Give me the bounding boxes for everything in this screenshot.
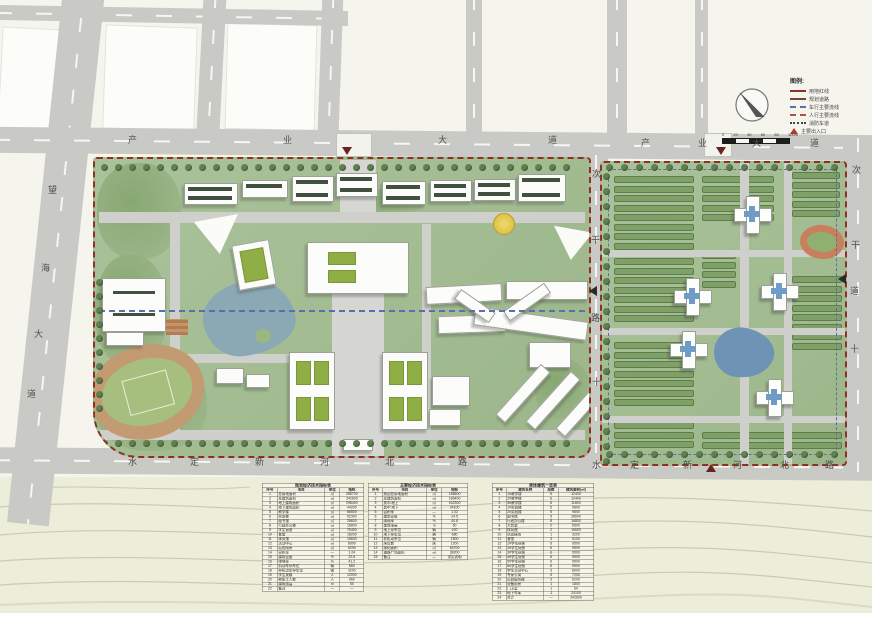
roof-strip [340,188,372,192]
table-cell: — [427,555,441,560]
legend-sample-dash-blue [790,106,806,108]
roof-strip [296,180,328,184]
roof-strip [113,313,155,316]
tree [96,335,103,342]
lakeside-building [216,368,244,384]
tree [255,440,262,447]
scale-segment [763,139,776,143]
scale-label: 60 [761,132,765,137]
tree [606,451,613,458]
road-label-top-east: 产 [641,139,650,148]
tree [666,451,673,458]
dormitory-building [430,180,472,202]
tree [129,164,136,171]
tree [199,440,206,447]
city-road [695,0,708,134]
tree [603,323,610,330]
roof-strip [340,177,372,181]
table-cell: — [325,587,340,592]
tree [603,218,610,225]
tree [603,398,610,405]
tree [465,440,472,447]
city-block [102,24,198,131]
tree [603,338,610,345]
road-label-left: 海 [41,264,50,273]
road-label-right: 次 [852,166,861,175]
road-label-top-east: 大 [752,139,761,148]
tree [96,293,103,300]
lakeside-building [246,374,270,388]
tree [171,440,178,447]
tree [115,164,122,171]
tree [726,451,733,458]
tree [157,440,164,447]
tree [353,164,360,171]
tree [96,405,103,412]
tree [96,391,103,398]
tree [726,164,733,171]
tree [96,349,103,356]
tree [297,164,304,171]
tree [603,248,610,255]
tree [493,440,500,447]
legend-label: 人行主要流线 [809,112,839,119]
triangle-building-east [554,222,591,260]
road-label-top-west: 道 [548,136,557,145]
road-label-bottom-east: 新 [683,461,692,470]
vehicle-flow-ring [608,169,837,455]
road-label-bottom-east: 北 [780,461,789,470]
road-label-bottom-west: 水 [128,458,137,467]
gymnasium [102,278,166,332]
courtyard-building [382,352,428,430]
dormitory-building [292,176,334,202]
roof-strip [434,193,466,197]
tree [521,440,528,447]
tree [283,164,290,171]
road-label-left: 望 [48,186,57,195]
legend-sample-dot-black [790,122,806,124]
dormitory-building [242,180,288,198]
drawing-sheet: 图例: 用地红线规划道路车行主要流线人行主要流线消防车道主要出入口 020406… [0,0,872,620]
roof-strip [478,192,510,196]
road-label-middle: 次 [592,170,601,179]
tree [96,321,103,328]
dormitory-building [518,174,566,202]
roof-strip [246,184,282,188]
road-label-right: 十 [850,345,859,354]
roof-strip [522,193,560,197]
tree [395,164,402,171]
tree [603,173,610,180]
roof-strip [386,196,420,200]
roof-strip [188,196,232,200]
table-cell: — [544,596,558,601]
tree [771,164,778,171]
tree [101,164,108,171]
scale-segment [736,139,749,143]
road-label-right: 道 [850,287,859,296]
legend-label: 消防车道 [809,120,829,127]
legend-item: 用地红线 [790,87,872,95]
road-label-bottom-west: 北 [385,458,394,467]
courtyard-green [407,361,422,385]
tree [741,451,748,458]
tree [101,440,108,447]
tree [816,451,823,458]
table-cell: 15 [368,555,382,560]
table-cell: 详见说明 [441,555,467,560]
tree [521,164,528,171]
table-cell: 合计 [506,596,544,601]
tree [423,164,430,171]
tree [479,440,486,447]
tree [563,440,570,447]
tree [157,164,164,171]
tree [636,164,643,171]
dormitory-building [382,181,426,205]
gym-annex [106,332,144,346]
courtyard-green [389,361,404,385]
table-row: 24合计—342600 [492,596,594,601]
tree [603,428,610,435]
tree [771,451,778,458]
tree [507,164,514,171]
road-label-right: 干 [851,241,860,250]
tree [311,440,318,447]
scale-label: 40 [747,132,751,137]
tree [493,164,500,171]
courtyard-green [389,397,404,421]
scale-label: 100m [788,132,798,137]
tree [213,164,220,171]
tree [171,164,178,171]
scale-segment [776,139,789,143]
tree [96,363,103,370]
tree [535,164,542,171]
tree [507,440,514,447]
tree [681,451,688,458]
road-label-bottom-east: 水 [592,461,601,470]
scale-segment [723,139,736,143]
road-label-bottom-east: 路 [825,461,834,470]
courtyard-green [314,397,329,421]
tree [666,164,673,171]
legend: 图例: 用地红线规划道路车行主要流线人行主要流线消防车道主要出入口 [790,76,872,135]
art-center-building [231,239,276,291]
tree [143,440,150,447]
tree [603,413,610,420]
roof-strip [188,187,232,191]
tree [96,377,103,384]
legend-label: 车行主要流线 [809,104,839,111]
entrance-marker [716,147,726,155]
tree [325,440,332,447]
legend-label: 规划道路 [809,96,829,103]
legend-label: 用地红线 [809,88,829,95]
tree [535,440,542,447]
table: 单体建筑一览表序号建筑名称层数建筑面积(㎡)11#教学楼61240022#教学楼… [492,483,594,601]
table-cell: 备注 [383,555,427,560]
table-cell: 备注 [278,587,325,592]
tree [549,440,556,447]
east-campus [600,161,847,466]
tree [549,164,556,171]
table-cell: — [340,587,364,592]
table: 主要经济技术指标表序号项目单位指标1规划总用地面积㎡1586002总建筑面积㎡1… [368,483,468,560]
tree [241,440,248,447]
scale-label: 0 [722,132,724,137]
tree [603,263,610,270]
tree [339,164,346,171]
tree [603,458,610,465]
legend-item: 车行主要流线 [790,103,872,111]
tree [831,164,838,171]
city-block [225,23,318,131]
entrance-marker [589,286,597,296]
road-label-bottom-west: 路 [458,458,467,467]
road-label-bottom-east: 定 [630,461,639,470]
road-label-top-west: 大 [438,136,447,145]
tree [621,164,628,171]
tree [603,293,610,300]
courtyard-green [296,397,311,421]
tree [185,164,192,171]
tree [96,307,103,314]
table-cell: 24 [492,596,506,601]
legend-sample-solid-red [790,90,806,92]
lake-island [255,329,271,343]
road-label-top-east: 业 [698,139,707,148]
tree [409,440,416,447]
tree [563,164,570,171]
dormitory-building [184,183,238,205]
table: 规划经济技术指标表序号项目单位指标1总用地面积㎡2867002总建筑面积㎡342… [262,483,364,592]
tree [479,164,486,171]
tree [353,440,360,447]
north-compass-icon [731,84,775,128]
tree [603,383,610,390]
tree [603,233,610,240]
tree [681,164,688,171]
table-row: 22备注—— [262,587,364,592]
central-axis-plaza [332,288,384,456]
tree [367,164,374,171]
road-secondary-east [843,138,872,472]
scale-label: 20 [733,132,737,137]
roof-strip [386,185,420,189]
roof-strip [478,183,510,187]
road-label-middle: 十 [592,378,601,387]
tree [451,164,458,171]
green-roof [328,270,356,283]
tree [756,164,763,171]
tree [199,164,206,171]
tree [437,440,444,447]
tree [651,451,658,458]
west-campus [93,157,591,458]
tree [227,164,234,171]
tree [741,164,748,171]
indicator-table-1: 规划经济技术指标表序号项目单位指标1总用地面积㎡2867002总建筑面积㎡342… [262,483,365,592]
tree [786,164,793,171]
tree [297,440,304,447]
tree [129,440,136,447]
roof-strip [113,291,155,294]
tree [395,440,402,447]
entrance-marker [706,464,716,472]
green-roof [239,247,268,283]
tree [603,188,610,195]
tree [325,164,332,171]
roof-strip [522,178,560,182]
road-label-bottom-west: 定 [190,458,199,467]
table-cell: 342600 [558,596,594,601]
legend-item: 规划道路 [790,95,872,103]
road-label-bottom-east: 河 [733,461,742,470]
tree [96,279,103,286]
tree [437,164,444,171]
tree [255,164,262,171]
legend-item: 人行主要流线 [790,111,872,119]
scale-label: 80 [774,132,778,137]
courtyard-green [407,397,422,421]
legend-title: 图例: [790,76,872,85]
dormitory-building [474,179,516,201]
road-label-top-east: 道 [810,139,819,148]
tree [816,164,823,171]
building-list-table: 单体建筑一览表序号建筑名称层数建筑面积(㎡)11#教学楼61240022#教学楼… [492,483,595,601]
legend-items: 用地红线规划道路车行主要流线人行主要流线消防车道主要出入口 [790,87,872,135]
sheet-margin [0,613,872,620]
courtyard-green [296,361,311,385]
site-plan-page: 图例: 用地红线规划道路车行主要流线人行主要流线消防车道主要出入口 020406… [0,0,872,620]
main-building [307,242,409,294]
tree [606,164,613,171]
courtyard-building [289,352,335,430]
tree [786,451,793,458]
indicator-table-2: 主要经济技术指标表序号项目单位指标1规划总用地面积㎡1586002总建筑面积㎡1… [368,483,469,560]
tree [603,368,610,375]
tree [801,164,808,171]
green-roof [328,252,356,265]
city-road [607,0,627,134]
legend-sample-dash-red [790,114,806,116]
courtyard-green [314,361,329,385]
city-road [318,0,344,134]
road-label-left: 道 [27,390,36,399]
road-label-bottom-west: 新 [255,458,264,467]
tree [185,440,192,447]
tree [696,164,703,171]
legend-item: 消防车道 [790,119,872,127]
entrance-marker [342,147,352,155]
tree [603,353,610,360]
tree [339,440,346,447]
tree [465,164,472,171]
tree [451,440,458,447]
tree [603,308,610,315]
tree [241,164,248,171]
road-label-top-west: 业 [283,136,292,145]
dormitory-building [336,173,378,197]
entrance-marker [838,274,846,284]
teaching-building [429,409,461,426]
tree [283,440,290,447]
tree [381,164,388,171]
tree [367,440,374,447]
terraced-plot [166,319,188,335]
teaching-building [432,376,470,406]
tree [603,443,610,450]
road-label-bottom-west: 河 [320,458,329,467]
tree [213,440,220,447]
tree [603,203,610,210]
table-row: 15备注—详见说明 [368,555,468,560]
legend-sample-solid-maroon [790,98,806,100]
tree [711,164,718,171]
city-road [0,5,348,26]
tree [756,451,763,458]
tree [269,440,276,447]
road-label-middle: 路 [591,314,600,323]
vehicle-flow-line [99,310,585,312]
scale-labels: 020406080100m [722,132,798,137]
road-label-top-west: 产 [128,136,137,145]
tree [115,440,122,447]
road-label-middle: 干 [591,236,600,245]
tree [636,451,643,458]
tree [143,164,150,171]
tree [801,451,808,458]
yellow-pavilion [493,213,515,235]
tree [311,164,318,171]
roof-strip [296,193,328,197]
tree [621,451,628,458]
forest-patch [97,163,181,259]
road-label-left: 大 [34,330,43,339]
city-road [466,0,482,134]
tree [651,164,658,171]
scale-bar: 020406080100m [722,132,806,144]
roof-strip [434,184,466,188]
tree [831,451,838,458]
tree [409,164,416,171]
tree [423,440,430,447]
tree [227,440,234,447]
table-cell: 22 [262,587,277,592]
tree [381,440,388,447]
tree [269,164,276,171]
tree [603,278,610,285]
tree [696,451,703,458]
tree [711,451,718,458]
teaching-building [529,342,571,368]
